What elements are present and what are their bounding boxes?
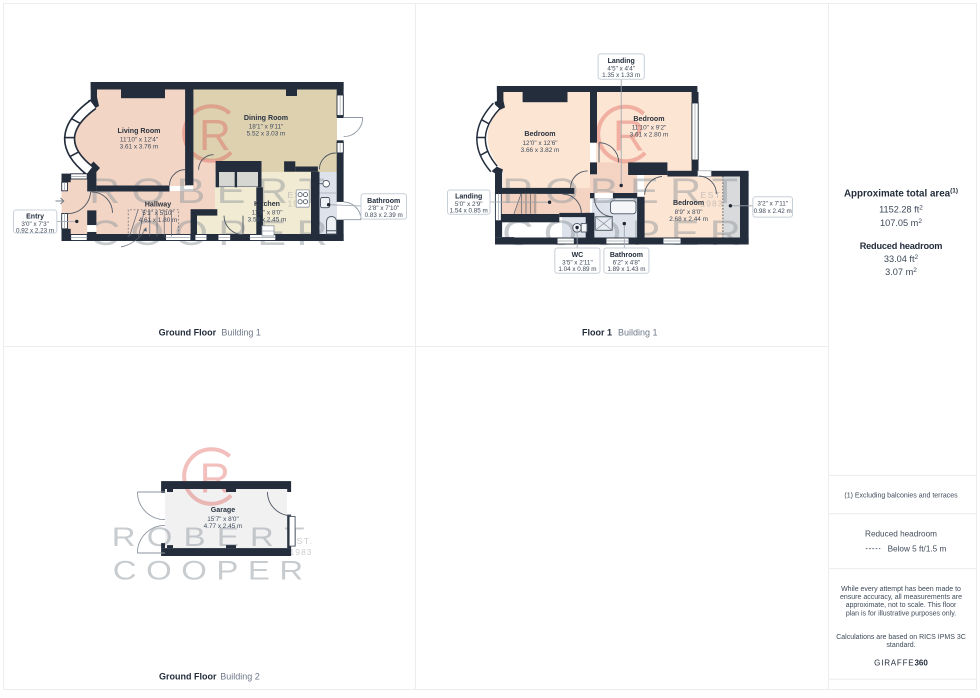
svg-text:plan is for illustrative purpo: plan is for illustrative purposes only. (846, 610, 956, 617)
svg-text:1.04 x 0.89 m: 1.04 x 0.89 m (558, 266, 596, 273)
svg-text:3.58 x 2.45 m: 3.58 x 2.45 m (248, 217, 287, 224)
svg-text:1152.28 ft2: 1152.28 ft2 (879, 205, 923, 215)
svg-text:Landing: Landing (455, 194, 482, 201)
svg-text:3.61 x 3.76 m: 3.61 x 3.76 m (120, 144, 159, 151)
svg-text:1.54 x 0.85 m: 1.54 x 0.85 m (450, 207, 488, 214)
svg-text:11'10" x 12'4": 11'10" x 12'4" (120, 137, 158, 144)
svg-text:1.89 x 1.43 m: 1.89 x 1.43 m (607, 266, 645, 273)
svg-text:(1) Excluding balconies and te: (1) Excluding balconies and terraces (844, 493, 958, 500)
svg-text:Ground Floor: Ground Floor (159, 328, 217, 338)
svg-text:8'9" x 8'0": 8'9" x 8'0" (675, 209, 703, 216)
svg-text:15'7" x 8'0": 15'7" x 8'0" (207, 516, 239, 523)
svg-text:Calculations are based on RICS: Calculations are based on RICS IPMS 3C (836, 634, 966, 641)
svg-text:Building 1: Building 1 (221, 328, 261, 338)
svg-text:0.83 x 2.39 m: 0.83 x 2.39 m (365, 212, 403, 219)
svg-text:11'8" x 8'0": 11'8" x 8'0" (251, 210, 282, 217)
svg-text:Dining Room: Dining Room (244, 114, 288, 122)
svg-text:GIRAFFE360: GIRAFFE360 (874, 659, 928, 668)
svg-text:Reduced headroom: Reduced headroom (865, 530, 937, 539)
svg-text:R: R (199, 111, 231, 160)
svg-text:WC: WC (572, 252, 584, 259)
svg-text:18'1" x 9'11": 18'1" x 9'11" (249, 124, 284, 131)
svg-text:3.66 x 3.82 m: 3.66 x 3.82 m (521, 147, 560, 154)
svg-text:33.04 ft2: 33.04 ft2 (884, 254, 919, 264)
svg-text:Reduced headroom: Reduced headroom (860, 241, 943, 251)
svg-text:Entry: Entry (26, 214, 44, 221)
svg-text:3.07 m2: 3.07 m2 (885, 267, 917, 277)
svg-text:2.68 x 2.44 m: 2.68 x 2.44 m (669, 216, 708, 223)
svg-text:approximate, not to scale. Thi: approximate, not to scale. This floor (846, 602, 957, 609)
svg-text:1.35 x 1.33 m: 1.35 x 1.33 m (602, 72, 640, 79)
svg-text:5.52 x 3.03 m: 5.52 x 3.03 m (247, 131, 286, 138)
svg-text:12'0" x 12'6": 12'0" x 12'6" (522, 140, 557, 147)
svg-text:Bathroom: Bathroom (367, 198, 400, 205)
svg-text:Bedroom: Bedroom (633, 115, 664, 123)
svg-text:Bathroom: Bathroom (610, 252, 643, 259)
svg-text:11'10" x 9'2": 11'10" x 9'2" (632, 124, 667, 131)
svg-text:ensure accuracy, all measureme: ensure accuracy, all measurements are (840, 594, 962, 601)
svg-text:1983: 1983 (290, 547, 313, 557)
svg-text:Building 2: Building 2 (220, 672, 260, 682)
svg-text:107.05 m2: 107.05 m2 (880, 218, 922, 228)
svg-text:While every attempt has been m: While every attempt has been made to (841, 586, 961, 593)
svg-text:0.92 x 2.23 m: 0.92 x 2.23 m (16, 227, 54, 234)
svg-text:standard.: standard. (886, 642, 915, 649)
svg-text:Building 1: Building 1 (618, 328, 658, 338)
svg-text:5'1" x 5'10": 5'1" x 5'10" (142, 210, 174, 217)
svg-text:3'2" x 7'11": 3'2" x 7'11" (757, 200, 788, 207)
svg-text:3.61 x 2.80 m: 3.61 x 2.80 m (630, 131, 669, 138)
svg-text:Kitchen: Kitchen (254, 200, 280, 208)
svg-text:Living Room: Living Room (118, 127, 161, 135)
svg-text:Floor 1: Floor 1 (582, 328, 612, 338)
svg-text:Below 5 ft/1.5 m: Below 5 ft/1.5 m (888, 545, 947, 554)
svg-text:Landing: Landing (608, 58, 635, 65)
svg-text:R: R (200, 455, 230, 502)
svg-text:Garage: Garage (211, 506, 236, 514)
svg-text:Approximate total area(1): Approximate total area(1) (844, 188, 958, 200)
svg-text:4.61 x 1.80 m: 4.61 x 1.80 m (139, 217, 178, 224)
svg-text:0.98 x 2.42 m: 0.98 x 2.42 m (754, 208, 792, 215)
svg-text:Ground Floor: Ground Floor (159, 672, 217, 682)
svg-text:Bedroom: Bedroom (524, 130, 555, 138)
svg-text:Bedroom: Bedroom (673, 199, 704, 207)
svg-text:4.77 x 2.45 m: 4.77 x 2.45 m (204, 523, 243, 530)
svg-text:Hallway: Hallway (145, 201, 171, 209)
